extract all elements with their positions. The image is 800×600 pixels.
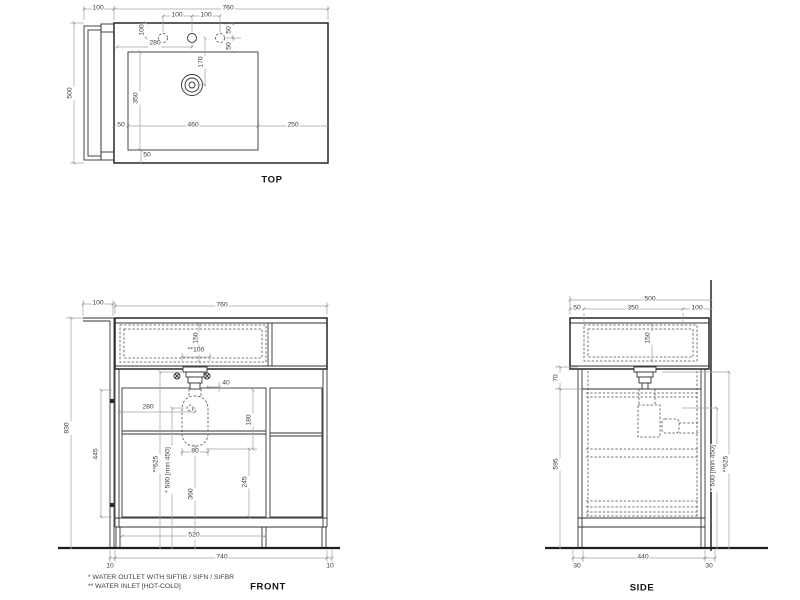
top-side-panel bbox=[84, 24, 114, 160]
dim-side-depth: 500 bbox=[643, 297, 656, 304]
front-worktop-and-basin bbox=[115, 318, 327, 369]
dim-front-drop: 180 bbox=[247, 413, 254, 426]
dim-top-depth: 500 bbox=[68, 86, 75, 99]
side-worktop-and-basin bbox=[570, 318, 709, 369]
dim-side-water-outlet-height: * 500 [min 450] bbox=[711, 444, 718, 492]
footnote-water-inlet: ** WATER INLET [HOT-COLD] bbox=[88, 582, 181, 592]
dim-front-plinth-span: 520 bbox=[187, 533, 200, 540]
top-basin-outline bbox=[128, 52, 258, 150]
dim-front-inlet-gap: **100 bbox=[187, 348, 206, 355]
dim-front-overhang: 100 bbox=[91, 301, 104, 308]
drawing-canvas bbox=[0, 0, 800, 600]
dim-top-hole-offset: 100 bbox=[140, 23, 147, 36]
dim-front-offset: 40 bbox=[221, 381, 231, 388]
dim-front-drain-from-left: 280 bbox=[141, 405, 154, 412]
optional-hole-right bbox=[216, 34, 225, 43]
dim-front-water-inlet-height: **625 bbox=[154, 455, 161, 474]
dim-side-front-offset: 50 bbox=[572, 306, 582, 313]
dim-side-basin-height: 150 bbox=[646, 331, 653, 344]
dim-front-door-height: 445 bbox=[94, 447, 101, 460]
side-view-dimension-lines bbox=[555, 296, 729, 562]
dim-top-margin-bottom: 50 bbox=[142, 153, 152, 160]
dim-side-foot-back: 30 bbox=[704, 564, 714, 571]
dim-front-trap-to-bottom: 245 bbox=[243, 475, 250, 488]
front-bottle-trap bbox=[182, 389, 208, 446]
dim-top-right-hole-a: 50 bbox=[227, 25, 234, 35]
dim-side-back-offset: 100 bbox=[690, 306, 703, 313]
dim-front-basin-height: 150 bbox=[194, 331, 201, 344]
side-cabinet-body bbox=[578, 369, 705, 548]
dim-side-cabinet-height: 595 bbox=[554, 457, 561, 470]
dim-side-apron: 70 bbox=[554, 373, 561, 383]
dim-front-base-width: 740 bbox=[215, 555, 228, 562]
technical-drawing-sheet: 100 760 100 100 100 280 50 50 170 500 35… bbox=[0, 0, 800, 600]
top-view-linework bbox=[84, 23, 328, 163]
side-view-linework bbox=[545, 280, 768, 551]
side-hidden-lines bbox=[586, 371, 700, 517]
dim-side-foot-front: 30 bbox=[572, 564, 582, 571]
side-drain-fitting bbox=[634, 367, 656, 389]
dim-top-margin-left: 50 bbox=[116, 123, 126, 130]
front-view-title: FRONT bbox=[250, 582, 286, 593]
dim-top-margin-right: 250 bbox=[286, 123, 299, 130]
dim-front-width: 760 bbox=[215, 303, 228, 310]
dim-top-overhang: 100 bbox=[91, 6, 104, 13]
dim-front-trap-width: 80 bbox=[190, 449, 200, 456]
top-view-title: TOP bbox=[261, 175, 282, 186]
dim-front-foot-right: 10 bbox=[325, 564, 335, 571]
dim-side-basin-span: 350 bbox=[626, 306, 639, 313]
dim-front-water-outlet-height: * 500 [min 450] bbox=[166, 446, 173, 494]
dim-side-water-inlet-height: **625 bbox=[724, 455, 731, 474]
top-worktop-outline bbox=[114, 23, 328, 163]
front-cabinet-body bbox=[115, 369, 327, 548]
dim-top-basin-width: 460 bbox=[186, 123, 199, 130]
side-view-title: SIDE bbox=[630, 583, 655, 594]
dim-front-foot-left: 10 bbox=[105, 564, 115, 571]
dim-front-trap-height: 360 bbox=[189, 487, 196, 500]
dim-top-drain-offset: 170 bbox=[199, 55, 206, 68]
dim-front-height: 830 bbox=[65, 421, 72, 434]
tap-hole bbox=[188, 34, 197, 43]
dim-side-base-depth: 440 bbox=[636, 555, 649, 562]
dim-top-basin-depth: 350 bbox=[134, 91, 141, 104]
front-wall-panel bbox=[83, 318, 114, 548]
dim-top-tap-from-left: 280 bbox=[148, 41, 161, 48]
dim-top-right-hole-b: 50 bbox=[227, 41, 234, 51]
front-drain-fitting bbox=[183, 367, 207, 389]
dim-top-width: 760 bbox=[221, 6, 234, 13]
dim-top-hole-gap-left: 100 bbox=[170, 13, 183, 20]
dim-top-hole-gap-right: 100 bbox=[199, 13, 212, 20]
